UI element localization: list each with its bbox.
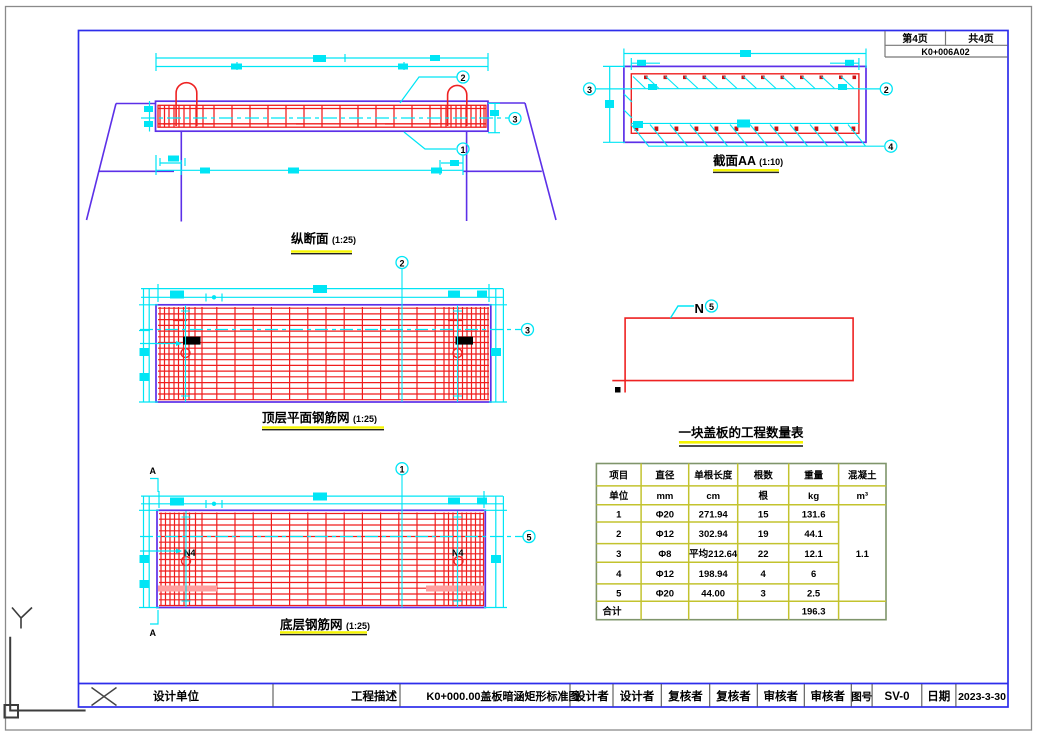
svg-text:Φ12: Φ12 xyxy=(656,569,674,580)
svg-text:重量: 重量 xyxy=(804,470,824,482)
svg-text:工程描述: 工程描述 xyxy=(351,689,397,703)
svg-text:1: 1 xyxy=(399,465,404,475)
svg-text:44.00: 44.00 xyxy=(701,589,725,600)
svg-text:一块盖板的工程数量表: 一块盖板的工程数量表 xyxy=(678,425,804,440)
svg-text:合计: 合计 xyxy=(602,606,622,618)
svg-text:根数: 根数 xyxy=(754,470,774,482)
svg-text:196.3: 196.3 xyxy=(802,607,826,618)
svg-text:2: 2 xyxy=(616,529,621,540)
svg-text:271.94: 271.94 xyxy=(699,510,729,521)
svg-text:mm: mm xyxy=(656,491,673,502)
svg-text:Φ8: Φ8 xyxy=(658,549,671,560)
svg-text:共4页: 共4页 xyxy=(968,32,994,45)
svg-text:cm: cm xyxy=(706,491,720,502)
svg-text:项目: 项目 xyxy=(609,471,628,482)
svg-text:2.5: 2.5 xyxy=(807,589,821,600)
svg-text:审核者: 审核者 xyxy=(764,689,799,703)
svg-text:审核者: 审核者 xyxy=(811,689,846,703)
svg-text:3: 3 xyxy=(616,549,621,560)
svg-text:平均212.64: 平均212.64 xyxy=(689,548,738,560)
svg-text:4: 4 xyxy=(616,569,622,580)
svg-text:198.94: 198.94 xyxy=(699,569,729,580)
svg-text:3: 3 xyxy=(525,326,530,336)
svg-text:5: 5 xyxy=(526,533,531,543)
svg-text:12.1: 12.1 xyxy=(804,549,823,560)
svg-text:m³: m³ xyxy=(856,491,868,502)
svg-text:2: 2 xyxy=(884,85,889,95)
svg-text:Φ20: Φ20 xyxy=(656,589,674,600)
svg-text:302.94: 302.94 xyxy=(699,529,729,540)
svg-text:Φ20: Φ20 xyxy=(656,510,674,521)
svg-text:1: 1 xyxy=(616,510,622,521)
svg-text:1: 1 xyxy=(460,145,465,155)
svg-text:A: A xyxy=(150,466,157,476)
svg-text:2023-3-30: 2023-3-30 xyxy=(958,691,1006,703)
svg-text:SV-0: SV-0 xyxy=(885,691,910,703)
svg-text:2: 2 xyxy=(399,259,404,269)
svg-text:3: 3 xyxy=(587,85,592,95)
svg-text:4: 4 xyxy=(888,142,893,152)
svg-text:44.1: 44.1 xyxy=(804,529,823,540)
svg-text:设计单位: 设计单位 xyxy=(153,689,199,703)
svg-text:19: 19 xyxy=(758,529,769,540)
svg-text:6: 6 xyxy=(811,569,816,580)
svg-text:设计者: 设计者 xyxy=(620,689,655,703)
svg-text:K0+006A02: K0+006A02 xyxy=(921,47,969,57)
svg-text:kg: kg xyxy=(808,491,819,502)
svg-text:Φ12: Φ12 xyxy=(656,529,674,540)
svg-text:22: 22 xyxy=(758,549,769,560)
svg-text:131.6: 131.6 xyxy=(802,510,826,521)
svg-text:设计者: 设计者 xyxy=(574,689,609,703)
svg-text:1.1: 1.1 xyxy=(856,549,870,560)
svg-text:5: 5 xyxy=(709,302,714,312)
svg-text:单位: 单位 xyxy=(609,490,629,502)
svg-text:2: 2 xyxy=(460,73,465,83)
svg-text:混凝土: 混凝土 xyxy=(848,470,877,482)
svg-text:4: 4 xyxy=(761,569,767,580)
svg-text:N: N xyxy=(695,301,704,316)
svg-text:15: 15 xyxy=(758,510,769,521)
svg-text:根: 根 xyxy=(758,490,768,502)
svg-text:A: A xyxy=(150,628,157,638)
svg-text:复核者: 复核者 xyxy=(715,689,751,703)
svg-text:日期: 日期 xyxy=(927,689,950,703)
svg-text:3: 3 xyxy=(512,115,517,125)
svg-text:K0+000.00盖板暗涵矩形标准图: K0+000.00盖板暗涵矩形标准图 xyxy=(426,689,579,703)
svg-text:第4页: 第4页 xyxy=(902,32,928,45)
svg-text:图号: 图号 xyxy=(851,691,872,703)
svg-text:直径: 直径 xyxy=(655,470,675,482)
svg-text:5: 5 xyxy=(616,589,622,600)
svg-text:3: 3 xyxy=(761,589,766,600)
svg-text:复核者: 复核者 xyxy=(667,689,703,703)
svg-text:单根长度: 单根长度 xyxy=(694,470,733,482)
